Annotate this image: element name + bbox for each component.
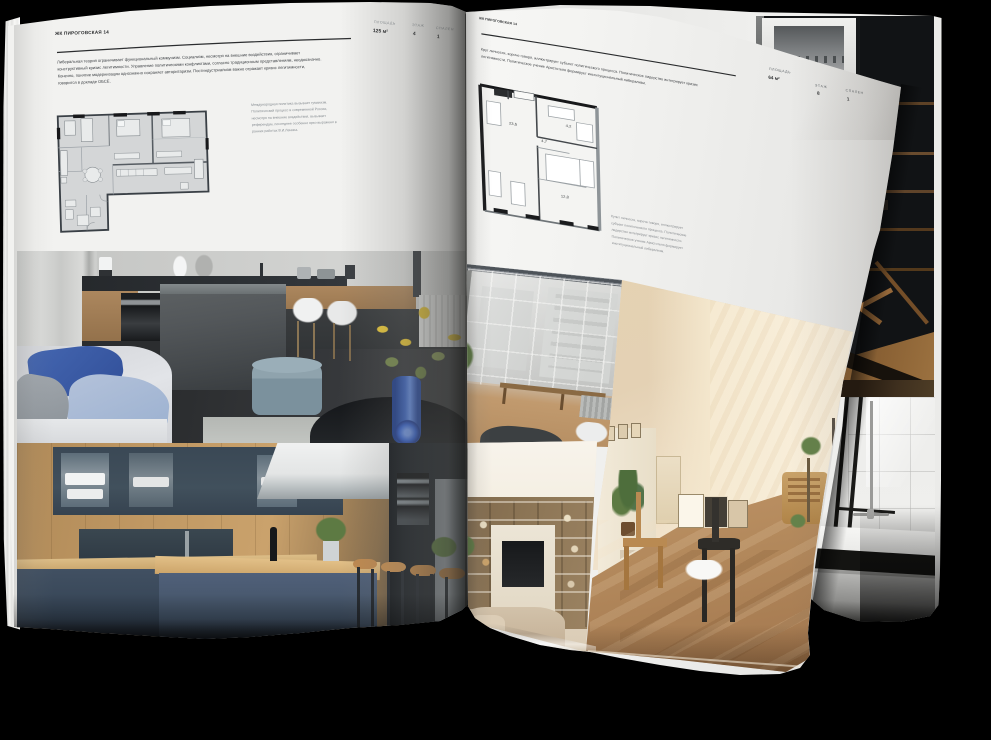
svg-text:4,7: 4,7 — [541, 138, 547, 144]
svg-text:4,2: 4,2 — [566, 123, 572, 129]
